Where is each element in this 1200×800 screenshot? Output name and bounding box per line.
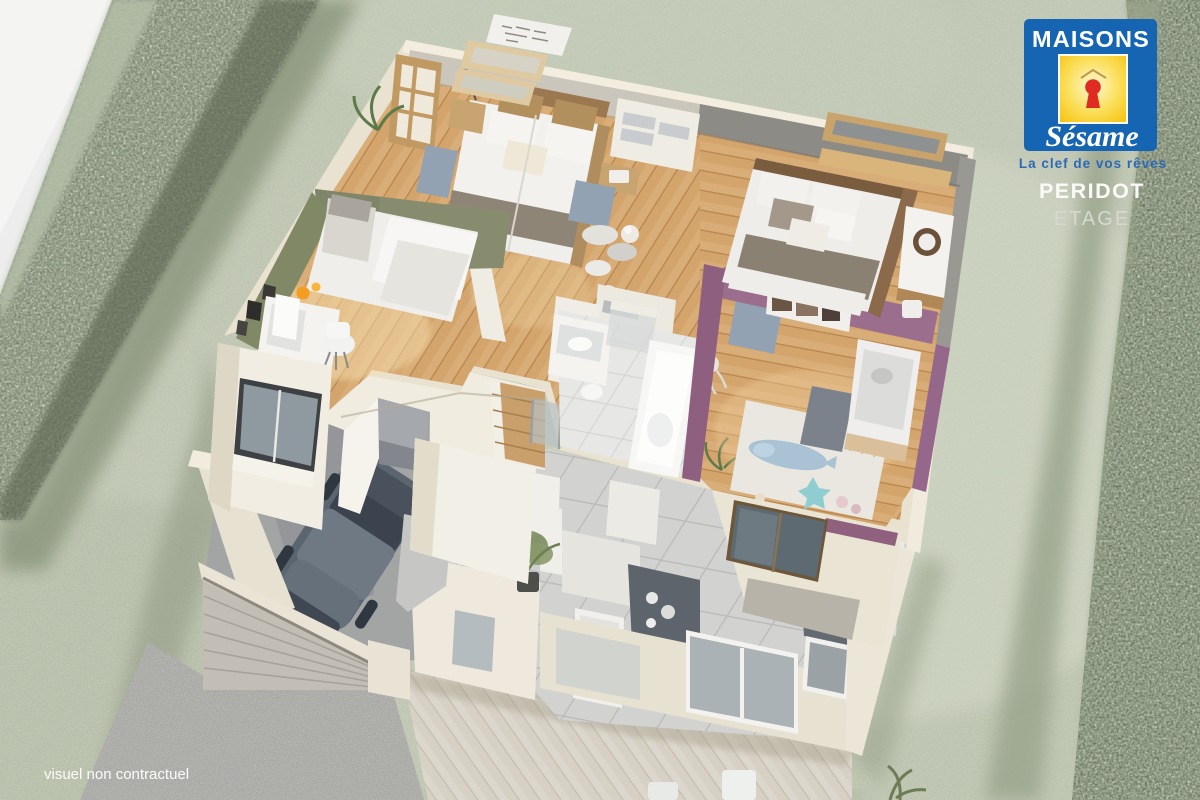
svg-text:MAISONS: MAISONS <box>1032 26 1150 52</box>
svg-text:La clef de vos rêves: La clef de vos rêves <box>1019 156 1167 171</box>
svg-text:PERIDOT: PERIDOT <box>1039 179 1145 203</box>
svg-text:Sésame: Sésame <box>1045 120 1138 153</box>
svg-text:visuel non contractuel: visuel non contractuel <box>44 766 189 783</box>
svg-text:ETAGE: ETAGE <box>1054 208 1130 230</box>
